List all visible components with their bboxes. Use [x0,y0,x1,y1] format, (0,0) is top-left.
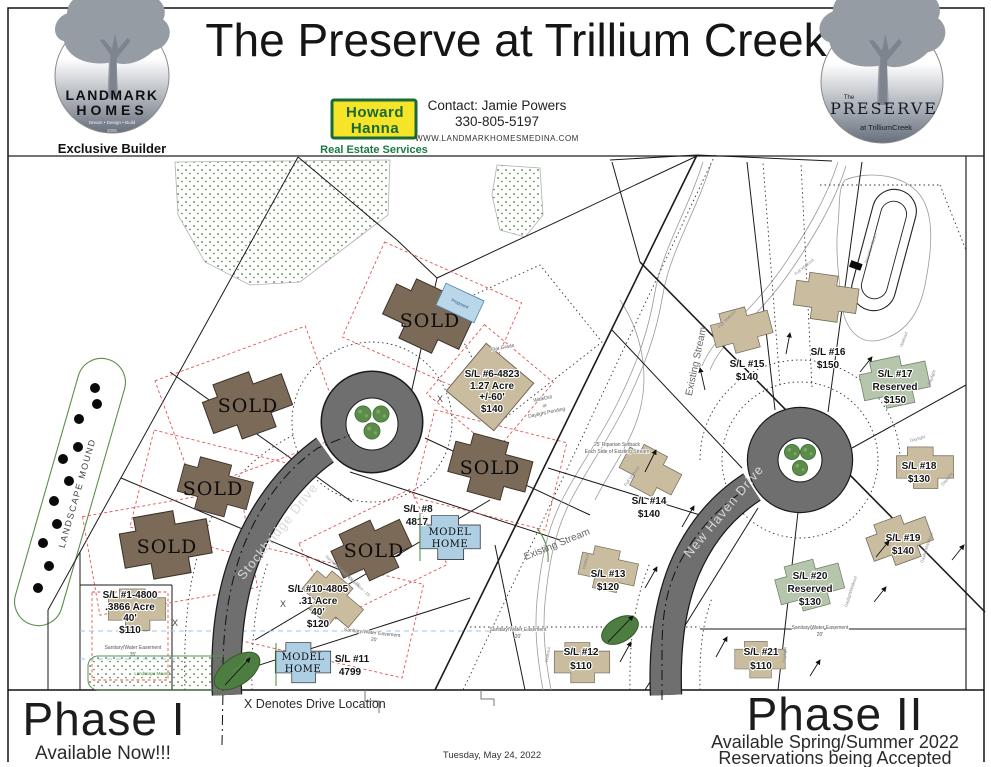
landmark-year: 2006 [107,128,117,133]
model-home-label: MODEL [429,527,472,538]
contact-phone[interactable]: 330-805-5197 [455,114,539,129]
wooded-area-small [492,165,543,237]
x-mark: X [172,618,178,628]
walkout-type-label: Daylight [781,646,787,663]
lot20-price: $130 [799,597,822,608]
lot15-house [708,301,776,357]
lot10-acreage: .31 Acre [299,596,338,607]
existing-stream-label: Existing Stream [684,326,709,397]
site-plan-page: LANDSCAPE MOUND [0,0,991,767]
howard-hanna-logo: Howard Hanna Real Estate Services [320,100,428,156]
lot14-label: S/L #14 $140 [632,496,667,520]
site-plan-drawing: LANDSCAPE MOUND [0,0,991,767]
lot10-price: $120 [307,619,330,630]
drive-location-note: X Denotes Drive Location [244,697,386,711]
lot8-address: 4817 [406,517,429,528]
hanna-word-1: Howard [346,104,404,121]
lot14-id: S/L #14 [632,496,667,507]
walkout-type-label: Walkout [899,331,909,348]
phase1-availability: Available Now!!! [35,743,171,764]
model-home-label: HOME [432,539,468,550]
model-home-label: HOME [285,664,321,675]
easement-20-label: Sanitary/Water Easement [792,625,849,631]
lot17-id: S/L #17 [878,369,913,380]
easement-20-size: 20' [817,632,824,638]
phase2-reservations: Reservations being Accepted [718,748,951,767]
lot1-price: $110 [119,625,141,636]
lot8-id: S/L #8 [403,504,433,515]
contact-block: Contact: Jamie Powers 330-805-5197 WWW.L… [415,98,579,143]
lot11-id: S/L #11 [335,654,370,665]
lot16-house [792,271,861,325]
preserve-name: PRESERVE [830,99,938,118]
easement-20-label: Sanitary/Water Easement [490,627,547,633]
lot8-label: S/L #8 4817 [403,504,433,528]
retention-basin: Retention Basin [837,175,931,341]
lot21-id: S/L #21 [744,647,779,658]
lot12-id: S/L #12 [564,647,599,658]
landmark-name-1: LANDMARK [66,87,159,103]
lot1-id: S/L #1-4800 [103,590,158,601]
sold-label: SOLD [400,310,460,332]
lot20-reserved: Reserved [787,584,832,595]
header: The Preserve at Trillium Creek LANDMARK … [55,0,945,156]
footer: Phase I Available Now!!! X Denotes Drive… [23,688,959,767]
sold-label: SOLD [183,478,243,500]
lot10-id: S/L #10-4805 [288,584,349,595]
page-title: The Preserve at Trillium Creek [205,14,827,66]
sold-label: SOLD [460,457,520,479]
lot15-price: $140 [736,372,759,383]
landscape-mound-small-label: Landscape Mound [134,671,170,676]
exclusive-builder-caption: Exclusive Builder [58,141,166,156]
lot16-price: $150 [817,360,840,371]
sold-label: SOLD [218,395,278,417]
phase1-title: Phase I [23,693,186,745]
lot16-label: S/L #16 $150 [811,347,846,371]
lot19-price: $140 [892,546,915,557]
lot6-note: or [542,403,548,410]
sold-label: SOLD [344,540,404,562]
lot6-id: S/L #6-4823 [465,369,520,380]
easement-35-label: Sanitary/Water Easement [105,645,162,651]
walkout-type-label: Daylight/Walkout [843,575,858,608]
lot15-id: S/L #15 [730,359,765,370]
hanna-caption: Real Estate Services [320,144,428,156]
lot14-price: $140 [638,509,661,520]
easement-20-size: 20' [371,637,378,644]
lot17-reserved: Reserved [872,382,917,393]
lot21-price: $110 [750,661,772,672]
riparian-note: Each Side of Existing Stream [585,449,650,455]
easement-20-size: 20' [515,634,522,640]
landmark-tagline: Dream • Design • Build [89,120,136,125]
lot6-grade: Flat Grade [491,343,516,354]
hanna-word-2: Hanna [351,120,400,137]
model-home-label: MODEL [282,652,325,663]
lot6-acreage: 1.27 Acre [470,381,515,392]
phase1-vegetation [175,160,543,285]
preserve-logo: The PRESERVE at TrilliumCreek [819,0,945,143]
walkout-type-label: Daylight [927,369,937,386]
lot6-price: $140 [481,404,504,415]
new-haven-drive-label: New Haven Drive [680,462,766,561]
lot1-frontage: 40' [123,613,137,624]
lot1-acreage: .3866 Acre [105,602,155,613]
x-mark: X [280,599,286,609]
plan-date: Tuesday, May 24, 2022 [443,750,541,761]
contact-website[interactable]: WWW.LANDMARKHOMESMEDINA.COM [415,134,579,143]
lot18-price: $130 [908,474,931,485]
lot19-id: S/L #19 [886,533,921,544]
x-mark: X [437,394,443,404]
walkout-type-label: Daylight [909,434,926,443]
riparian-note: 25' Riparian Setback [594,442,640,448]
lot16-id: S/L #16 [811,347,846,358]
contact-name: Contact: Jamie Powers [428,98,567,113]
lot18-id: S/L #18 [902,461,937,472]
landmark-logo: LANDMARK HOMES Dream • Design • Build 20… [55,0,170,156]
preserve-sub: at TrilliumCreek [860,123,912,132]
lot12-price: $110 [570,661,592,672]
lot11-address: 4799 [339,667,362,678]
wooded-area-large [175,160,390,285]
landmark-name-2: HOMES [76,102,147,118]
lot17-price: $150 [884,395,907,406]
sold-label: SOLD [137,536,197,558]
lot10-frontage: 40' [311,607,325,618]
lot11-label: S/L #11 4799 [335,654,370,678]
lot13-id: S/L #13 [591,569,626,580]
lot13-price: $120 [597,582,620,593]
lot20-id: S/L #20 [793,571,828,582]
lot6-frontage: +/-60' [479,392,504,403]
